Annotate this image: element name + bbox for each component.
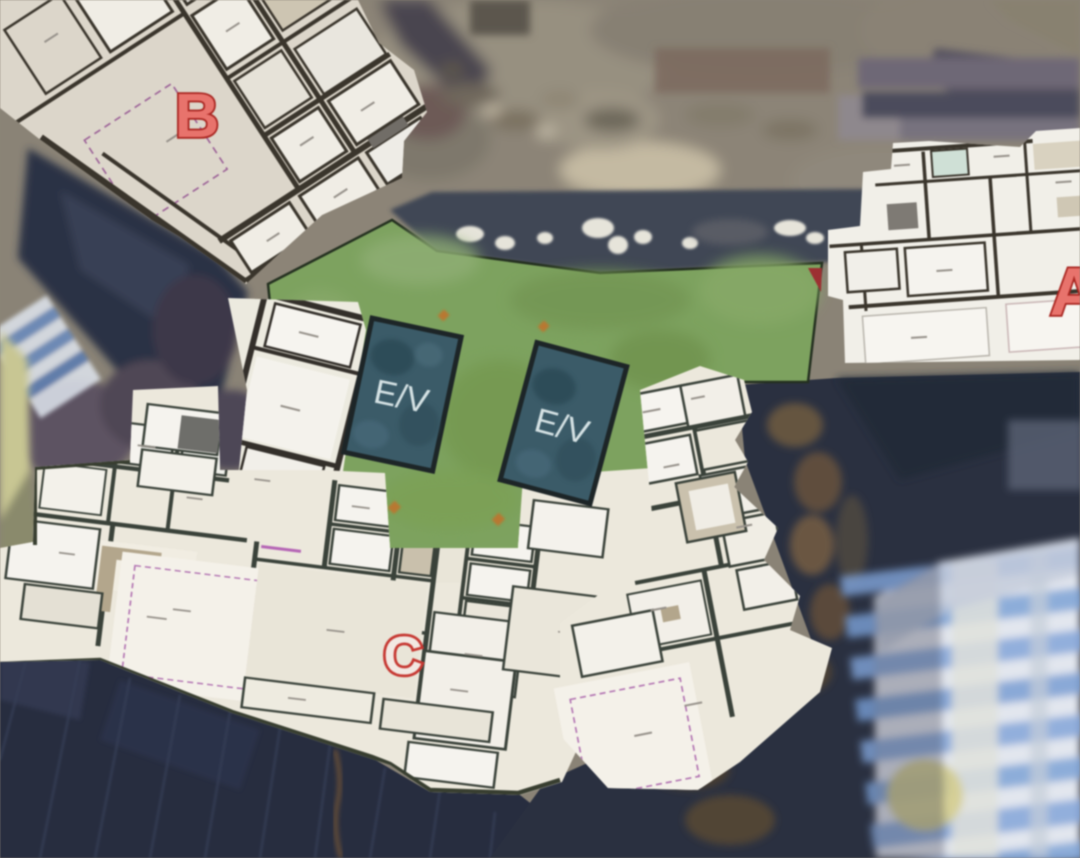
svg-text:B: B: [175, 82, 220, 151]
svg-text:C: C: [384, 626, 423, 686]
svg-text:A: A: [1049, 254, 1080, 330]
